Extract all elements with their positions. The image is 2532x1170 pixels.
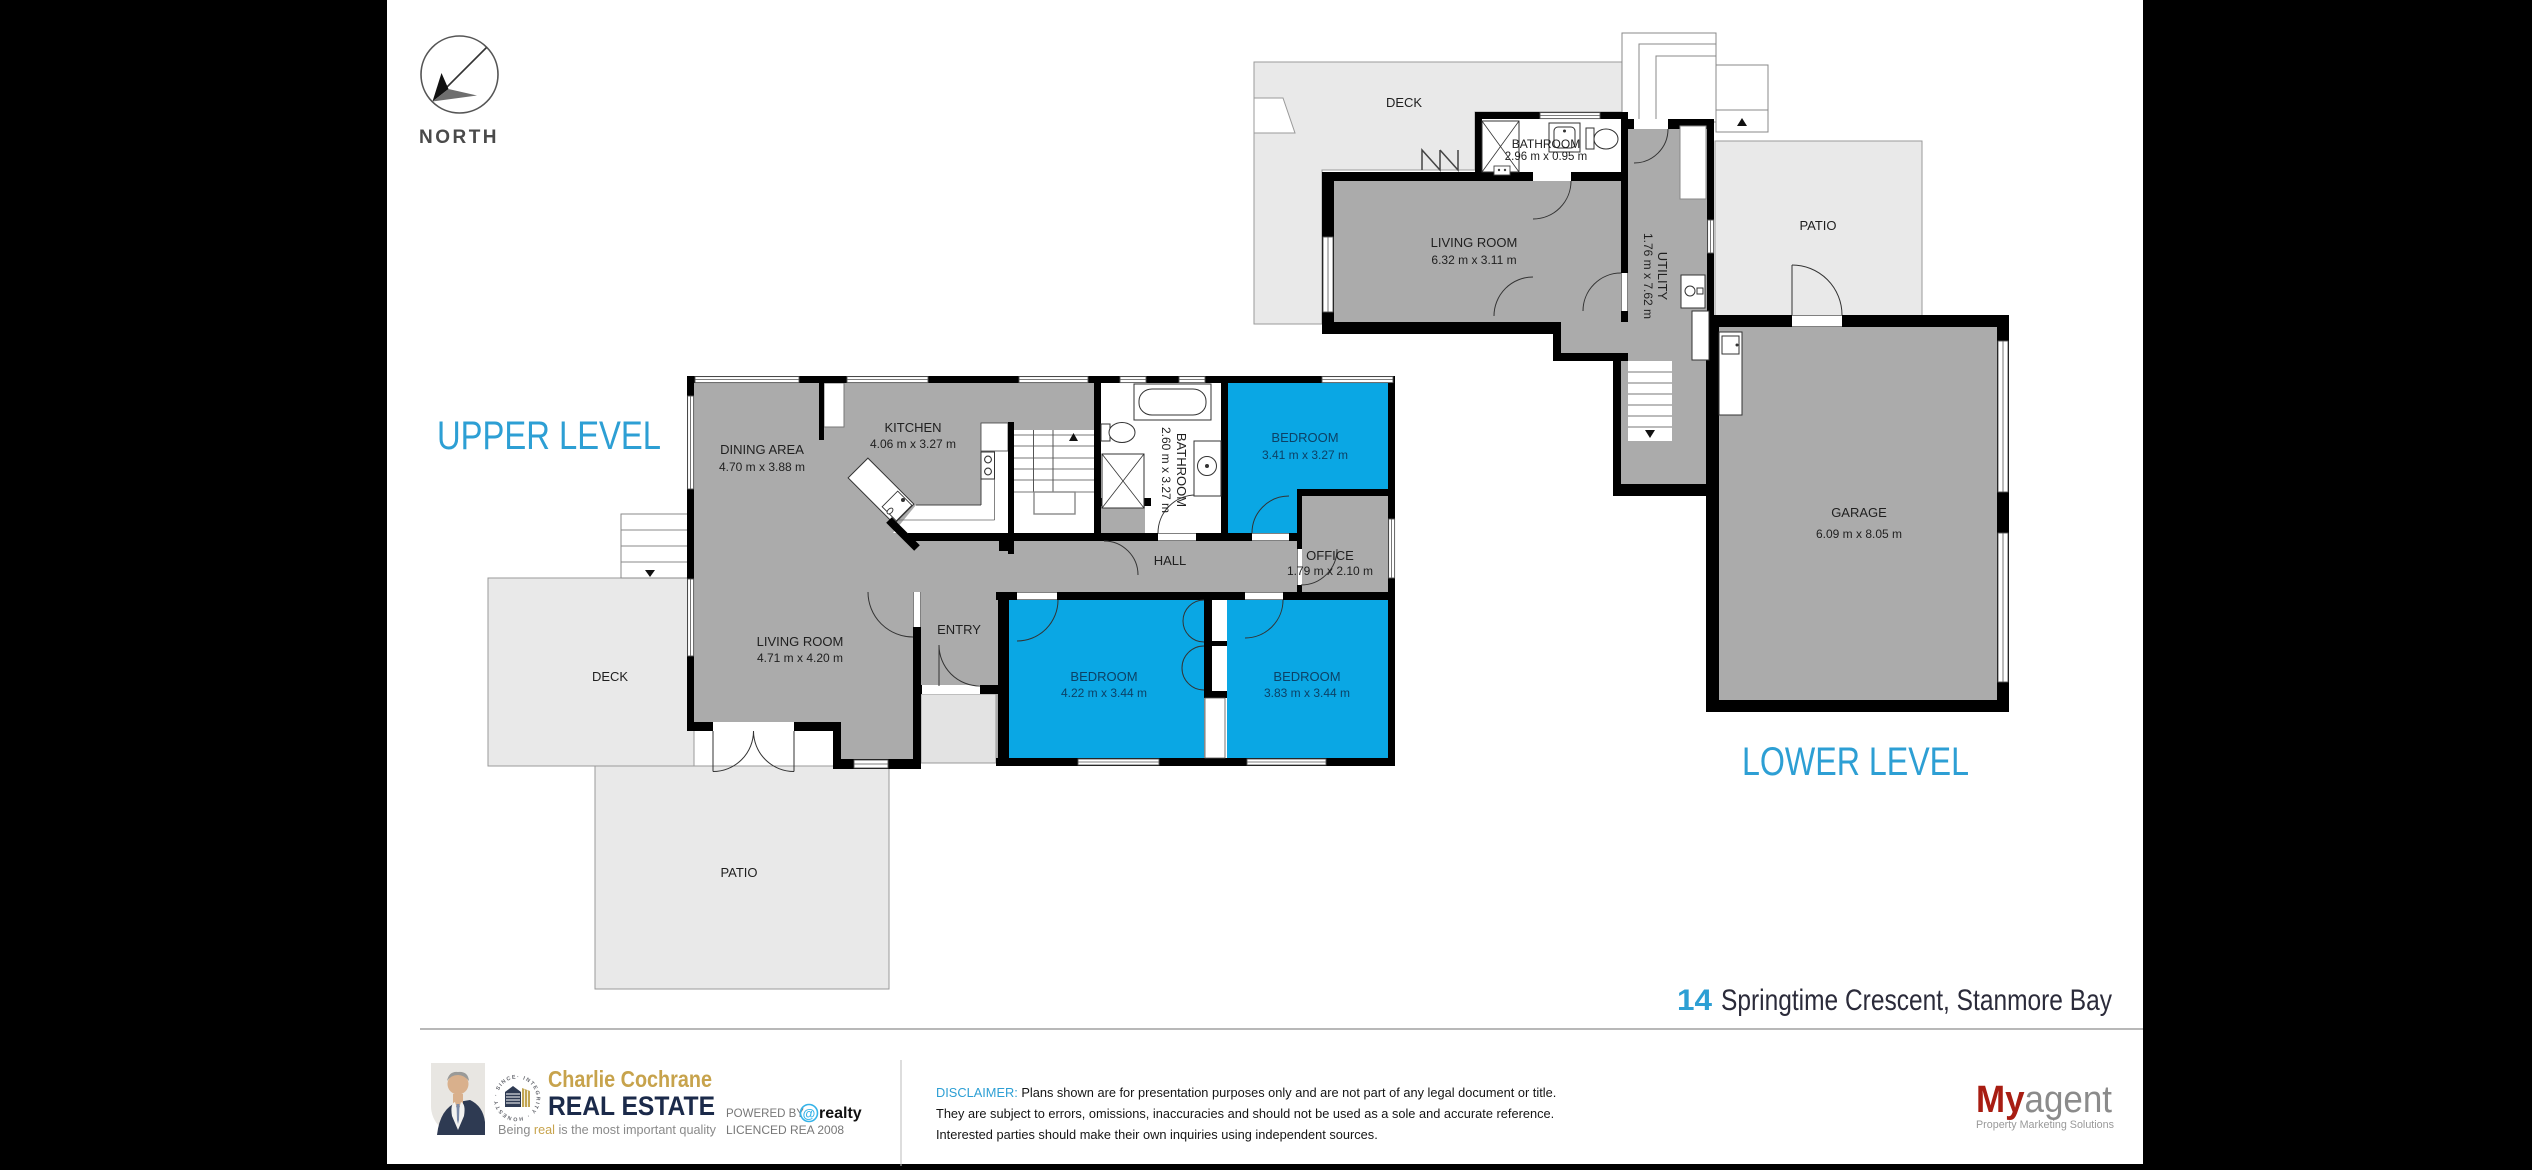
svg-text:4.06 m x 3.27 m: 4.06 m x 3.27 m	[870, 437, 956, 451]
svg-text:LOWER LEVEL: LOWER LEVEL	[1742, 740, 1969, 784]
svg-text:POWERED BY: POWERED BY	[726, 1108, 804, 1120]
svg-text:Interested parties should make: Interested parties should make their own…	[936, 1127, 1378, 1142]
svg-text:Myagent: Myagent	[1976, 1079, 2112, 1121]
svg-text:3.41 m x 3.27 m: 3.41 m x 3.27 m	[1262, 448, 1348, 462]
svg-text:Property Marketing Solutions: Property Marketing Solutions	[1976, 1119, 2114, 1131]
svg-text:PATIO: PATIO	[720, 865, 757, 880]
svg-text:1.76 m x 7.62 m: 1.76 m x 7.62 m	[1641, 233, 1655, 319]
svg-text:KITCHEN: KITCHEN	[884, 420, 941, 435]
svg-text:BEDROOM: BEDROOM	[1271, 430, 1338, 445]
svg-text:4.22 m x 3.44 m: 4.22 m x 3.44 m	[1061, 686, 1147, 700]
svg-text:BEDROOM: BEDROOM	[1273, 669, 1340, 684]
svg-text:6.09 m x 8.05 m: 6.09 m x 8.05 m	[1816, 527, 1902, 541]
svg-text:OFFICE: OFFICE	[1306, 548, 1354, 563]
svg-text:2.60 m x 3.27 m: 2.60 m x 3.27 m	[1159, 427, 1173, 513]
svg-text:LIVING ROOM: LIVING ROOM	[757, 634, 844, 649]
svg-text:14: 14	[1677, 984, 1712, 1017]
svg-text:DECK: DECK	[1386, 95, 1422, 110]
svg-text:BATHROOM: BATHROOM	[1174, 433, 1189, 507]
svg-text:UTILITY: UTILITY	[1655, 252, 1670, 301]
svg-text:GARAGE: GARAGE	[1831, 505, 1887, 520]
svg-text:LIVING ROOM: LIVING ROOM	[1431, 235, 1518, 250]
svg-text:LICENCED REA 2008: LICENCED REA 2008	[726, 1123, 844, 1137]
svg-text:realty: realty	[819, 1105, 862, 1122]
svg-text:4.71 m x 4.20 m: 4.71 m x 4.20 m	[757, 651, 843, 665]
svg-text:UPPER LEVEL: UPPER LEVEL	[437, 414, 661, 458]
svg-text:BEDROOM: BEDROOM	[1070, 669, 1137, 684]
svg-text:ENTRY: ENTRY	[937, 622, 981, 637]
svg-text:2.96 m x 0.95 m: 2.96 m x 0.95 m	[1505, 151, 1587, 163]
svg-text:BATHROOM: BATHROOM	[1512, 137, 1580, 151]
svg-text:DISCLAIMER: Plans shown are fo: DISCLAIMER: Plans shown are for presenta…	[936, 1085, 1556, 1100]
svg-text:They are subject to errors, om: They are subject to errors, omissions, i…	[936, 1106, 1554, 1121]
svg-text:6.32 m x 3.11 m: 6.32 m x 3.11 m	[1431, 253, 1516, 267]
svg-text:HALL: HALL	[1154, 553, 1187, 568]
svg-text:PATIO: PATIO	[1799, 218, 1836, 233]
svg-text:Being real is the most importa: Being real is the most important quality	[498, 1122, 717, 1137]
svg-text:Charlie Cochrane: Charlie Cochrane	[548, 1066, 712, 1092]
svg-text:4.70 m x 3.88 m: 4.70 m x 3.88 m	[719, 460, 805, 474]
svg-text:1.79 m x 2.10 m: 1.79 m x 2.10 m	[1287, 564, 1373, 578]
svg-text:DINING AREA: DINING AREA	[720, 442, 804, 457]
svg-text:DECK: DECK	[592, 669, 628, 684]
svg-text:@: @	[803, 1106, 816, 1121]
svg-text:NORTH: NORTH	[419, 127, 499, 148]
svg-text:3.83 m x 3.44 m: 3.83 m x 3.44 m	[1264, 686, 1350, 700]
svg-text:REAL ESTATE: REAL ESTATE	[548, 1091, 715, 1121]
svg-text:Springtime Crescent, Stanmore: Springtime Crescent, Stanmore Bay	[1721, 984, 2112, 1017]
